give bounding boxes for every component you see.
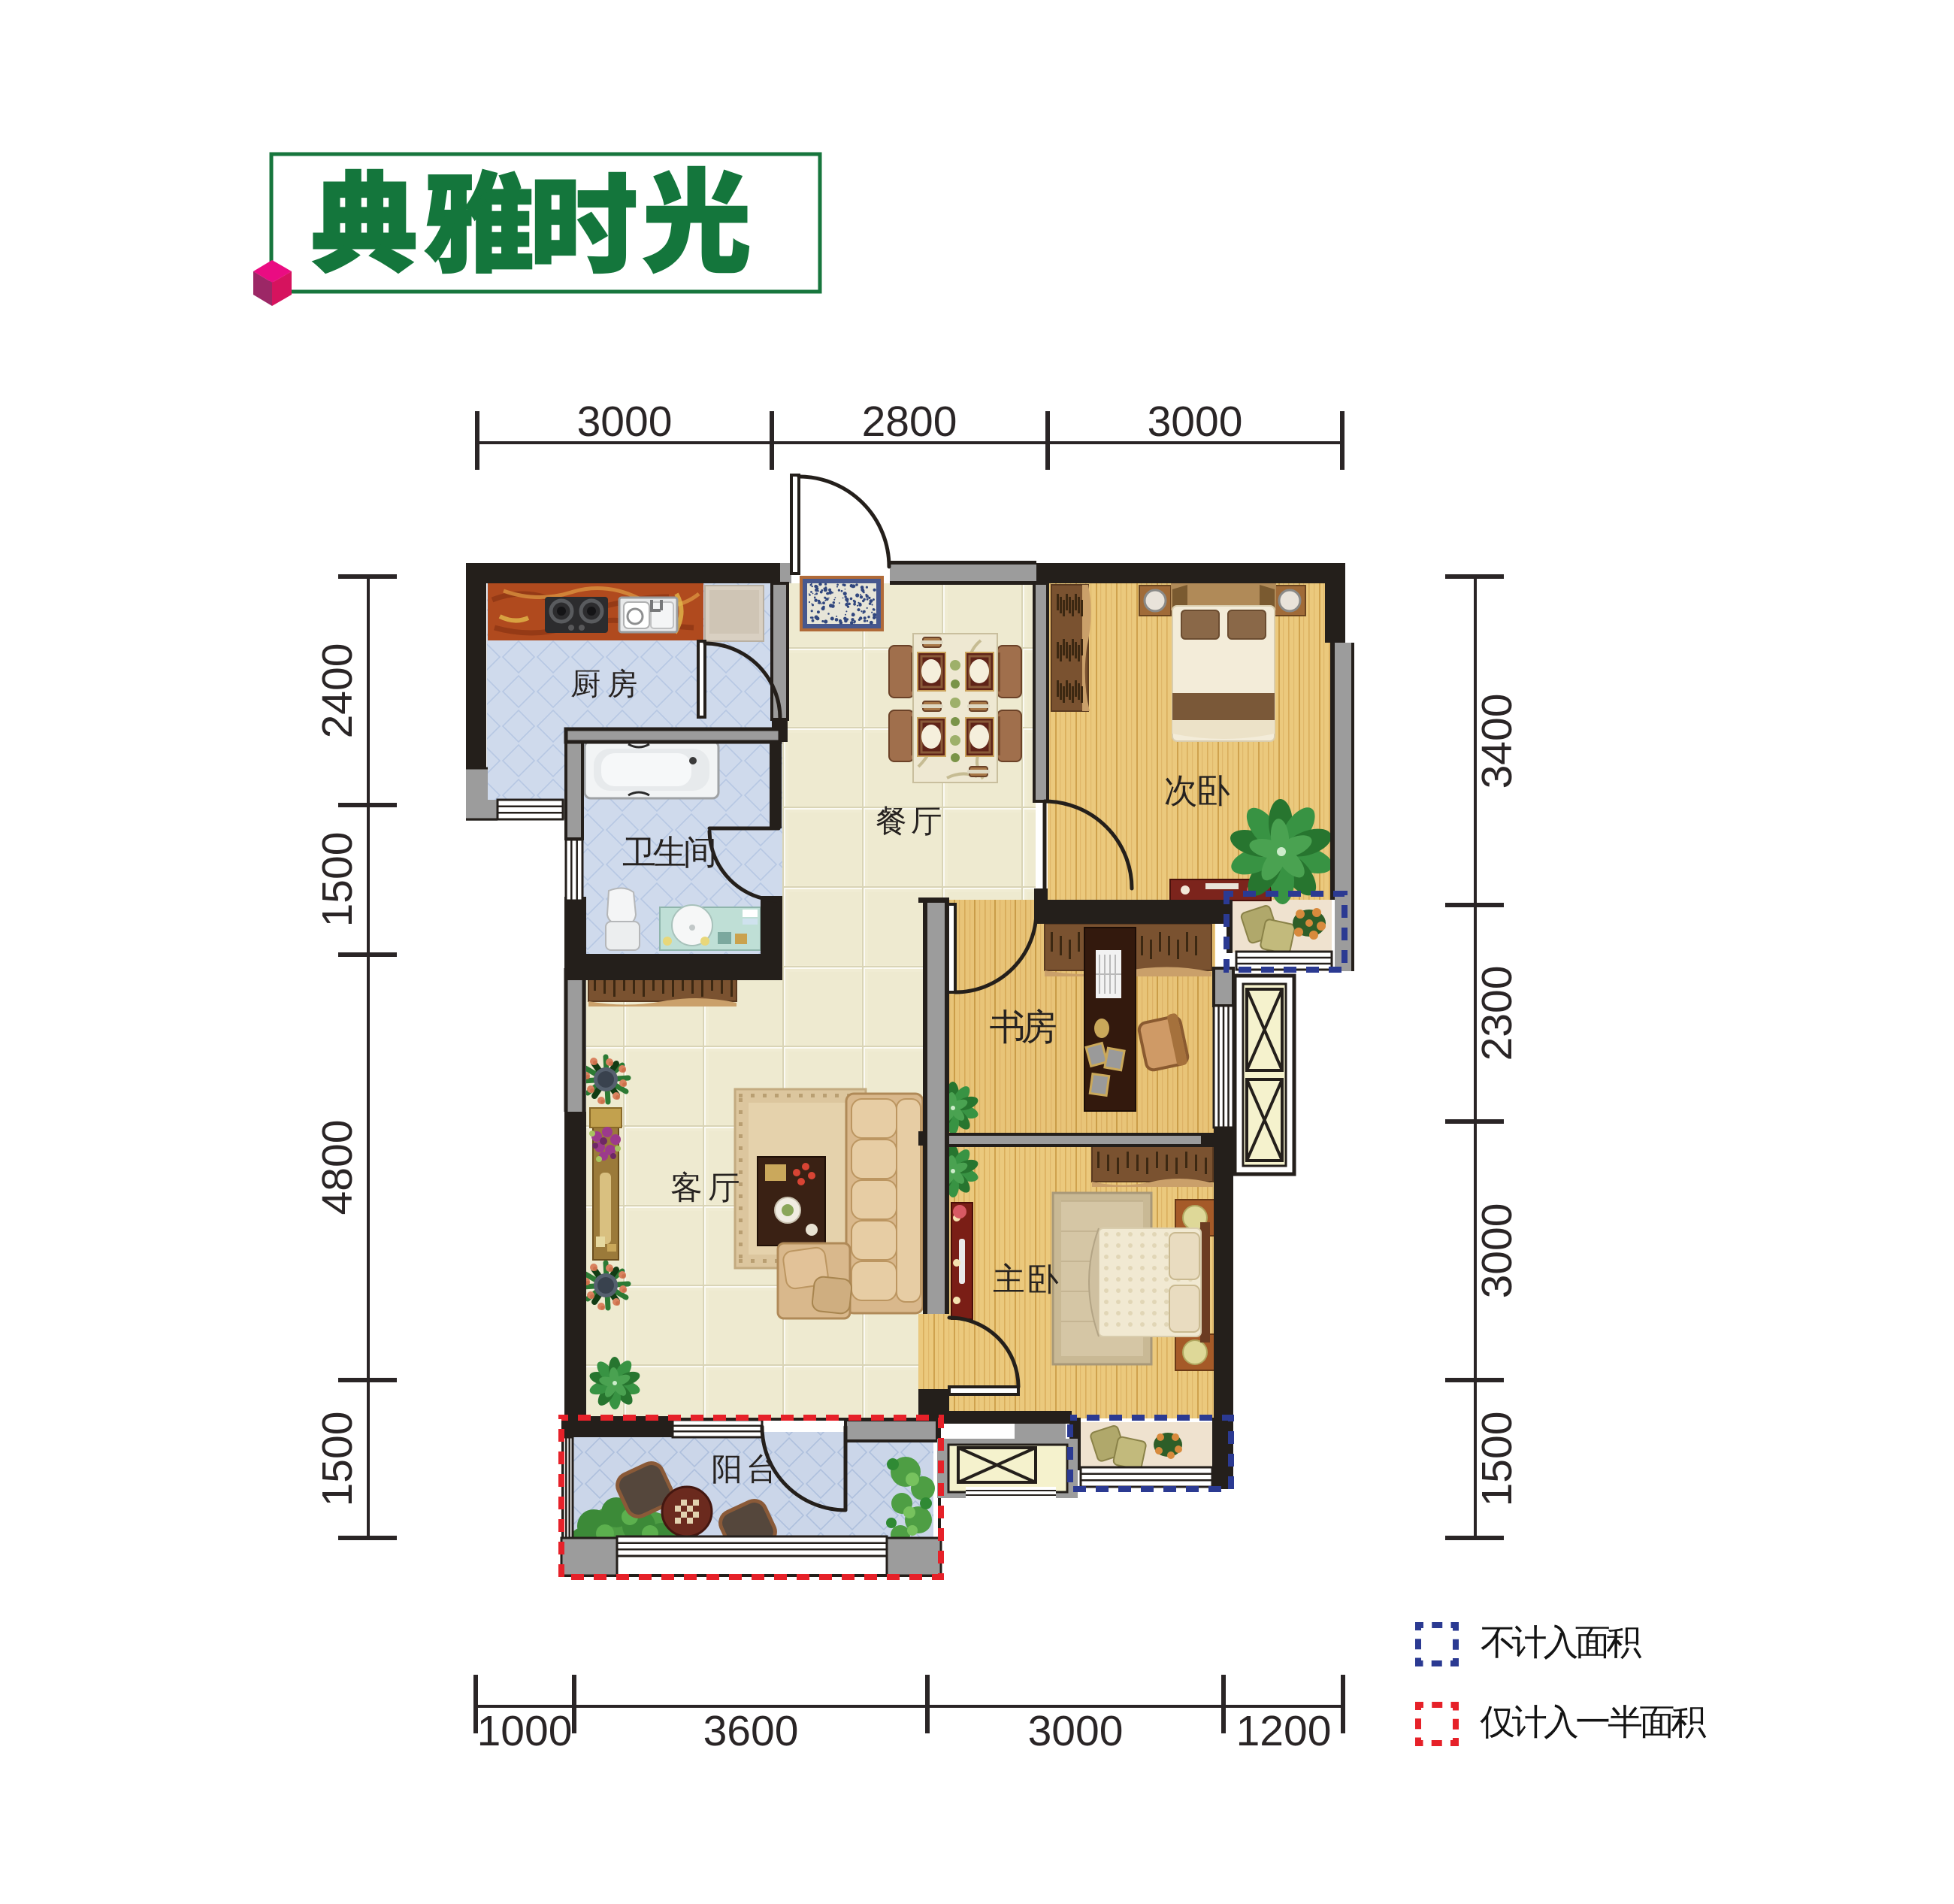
svg-text:3400: 3400	[1473, 694, 1521, 789]
svg-text:3000: 3000	[1473, 1203, 1521, 1299]
svg-text:2300: 2300	[1473, 966, 1521, 1061]
svg-text:3000: 3000	[1148, 398, 1243, 446]
svg-text:3000: 3000	[577, 398, 673, 446]
svg-text:1500: 1500	[313, 832, 361, 928]
svg-text:1000: 1000	[477, 1707, 573, 1755]
svg-text:2800: 2800	[862, 398, 957, 446]
svg-text:2400: 2400	[313, 643, 361, 739]
svg-text:3600: 3600	[703, 1707, 799, 1755]
svg-text:1500: 1500	[313, 1412, 361, 1507]
svg-text:4800: 4800	[313, 1120, 361, 1215]
svg-text:3000: 3000	[1028, 1707, 1124, 1755]
svg-text:1200: 1200	[1236, 1707, 1332, 1755]
svg-text:1500: 1500	[1473, 1412, 1521, 1507]
